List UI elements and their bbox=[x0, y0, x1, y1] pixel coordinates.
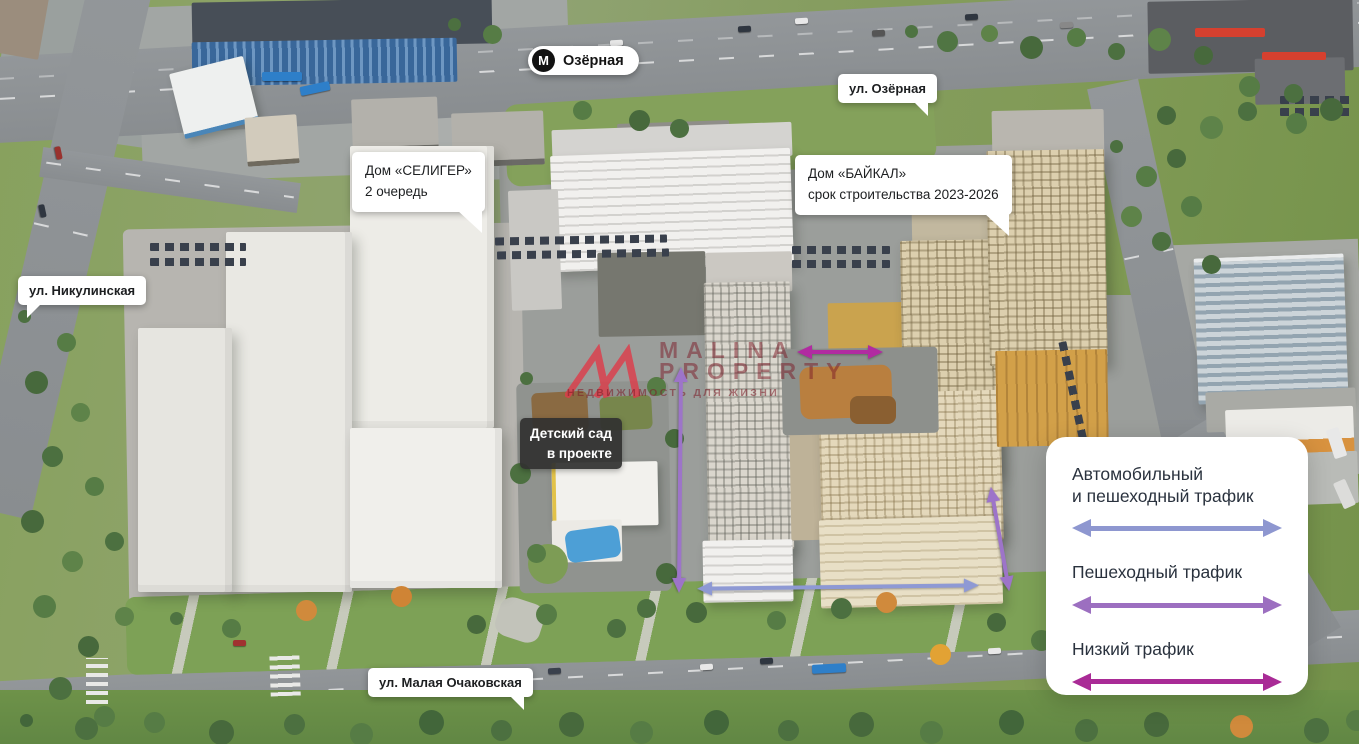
metro-station-name: Озёрная bbox=[563, 53, 624, 69]
legend-arrow-pedestrian bbox=[1072, 596, 1282, 614]
building-name: Дом «БАЙКАЛ» bbox=[808, 164, 999, 185]
central-tower bbox=[704, 281, 795, 550]
arrowhead-right bbox=[1263, 596, 1282, 614]
label-street-nikulinskaya: ул. Никулинская bbox=[18, 276, 146, 305]
parking-row-mid-1 bbox=[792, 246, 890, 254]
building-phase: 2 очередь bbox=[365, 182, 472, 203]
legend-arrow-low-traffic bbox=[1072, 673, 1282, 691]
arrow-low-traffic-courtyard bbox=[797, 345, 883, 359]
arrowhead-right bbox=[1263, 519, 1282, 537]
label-building-baikal: Дом «БАЙКАЛ» срок строительства 2023-202… bbox=[795, 155, 1012, 215]
legend-item-low-traffic: Низкий трафик bbox=[1072, 639, 1282, 691]
massing-seliger2-d bbox=[350, 428, 502, 588]
car bbox=[738, 26, 751, 33]
car bbox=[872, 30, 885, 37]
massing-seliger2-b bbox=[226, 232, 352, 592]
building-construction-period: срок строительства 2023-2026 bbox=[808, 185, 999, 206]
arrow-shaft bbox=[1088, 526, 1266, 531]
car bbox=[988, 648, 1001, 655]
trees-bottom-row bbox=[20, 714, 33, 727]
parking-row-right-1 bbox=[1280, 96, 1352, 104]
commercial-red-accent-2 bbox=[1262, 52, 1326, 60]
label-street-ozernaya: ул. Озёрная bbox=[838, 74, 937, 103]
arrow-shaft bbox=[1088, 679, 1266, 684]
parking-row-mid-2 bbox=[792, 260, 890, 268]
car bbox=[795, 18, 808, 25]
kindergarten-lawn bbox=[528, 544, 568, 584]
arrow-pedestrian-west bbox=[672, 367, 688, 593]
kindergarten-line1: Детский сад bbox=[530, 424, 612, 444]
kindergarten-building bbox=[551, 461, 658, 527]
car bbox=[233, 640, 246, 646]
trees-top-right bbox=[905, 25, 918, 38]
courtyard-playground-2 bbox=[850, 396, 896, 424]
trees-kindergarten bbox=[520, 372, 533, 385]
building-garage-a bbox=[244, 114, 299, 167]
car bbox=[760, 658, 773, 665]
legend-item-car-pedestrian: Автомобильный и пешеходный трафик bbox=[1072, 464, 1282, 537]
building-glass-construction bbox=[1193, 253, 1348, 404]
legend-label-line: Низкий трафик bbox=[1072, 639, 1282, 661]
trees-top-mid bbox=[448, 18, 461, 31]
arrow-shaft bbox=[809, 350, 871, 354]
arrow-shaft bbox=[709, 583, 967, 590]
legend-item-pedestrian: Пешеходный трафик bbox=[1072, 562, 1282, 614]
car bbox=[548, 668, 561, 675]
metro-station-badge: М Озёрная bbox=[528, 46, 639, 75]
legend-label-line: Пешеходный трафик bbox=[1072, 562, 1282, 584]
arrow-shaft bbox=[1088, 603, 1266, 608]
arrowhead-right bbox=[868, 345, 883, 359]
baikal-midrise-base bbox=[819, 516, 1003, 609]
car bbox=[965, 14, 978, 21]
car bbox=[1060, 22, 1073, 29]
building-name: Дом «СЕЛИГЕР» bbox=[365, 161, 472, 182]
street-name: ул. Никулинская bbox=[29, 283, 135, 298]
masterplan-aerial-render: MALINA PROPERTY НЕДВИЖИМОСТЬ ДЛЯ ЖИЗНИ М… bbox=[0, 0, 1359, 744]
street-name: ул. Озёрная bbox=[849, 81, 926, 96]
legend-label-line: и пешеходный трафик bbox=[1072, 486, 1282, 508]
arrow-shaft bbox=[677, 379, 683, 581]
parking-row-right-2 bbox=[1280, 108, 1352, 116]
trees-right-mid bbox=[1110, 140, 1123, 153]
label-building-seliger: Дом «СЕЛИГЕР» 2 очередь bbox=[352, 152, 485, 212]
bus-depot-1 bbox=[262, 72, 302, 81]
kindergarten-line2: в проекте bbox=[530, 444, 612, 464]
street-name: ул. Малая Очаковская bbox=[379, 675, 522, 690]
crosswalk-west bbox=[269, 651, 301, 696]
building-garage-b bbox=[351, 97, 439, 154]
crosswalk-far-west bbox=[86, 658, 108, 704]
parking-row-left-2 bbox=[150, 258, 246, 266]
car bbox=[700, 664, 713, 671]
lawn-bottom bbox=[0, 690, 1359, 744]
commercial-red-accent-1 bbox=[1195, 28, 1265, 37]
trees-boulevard bbox=[170, 612, 183, 625]
metro-logo-icon: М bbox=[532, 49, 555, 72]
legend-label-line: Автомобильный bbox=[1072, 464, 1282, 486]
arrowhead-right bbox=[1263, 673, 1282, 691]
east-tower-base-orange bbox=[995, 349, 1109, 447]
massing-seliger2-c bbox=[138, 328, 232, 592]
legend-arrow-car-pedestrian bbox=[1072, 519, 1282, 537]
parking-row-left-1 bbox=[150, 243, 246, 251]
traffic-legend-panel: Автомобильный и пешеходный трафик Пешехо… bbox=[1046, 437, 1308, 695]
arrowhead-right bbox=[964, 578, 979, 592]
building-midrise-dark bbox=[597, 251, 706, 337]
bus-street bbox=[812, 663, 846, 674]
arrowhead-right bbox=[672, 578, 686, 593]
label-kindergarten: Детский сад в проекте bbox=[520, 418, 622, 469]
label-street-malaya-ochakovskaya: ул. Малая Очаковская bbox=[368, 668, 533, 697]
arrowhead-right bbox=[1000, 575, 1016, 592]
